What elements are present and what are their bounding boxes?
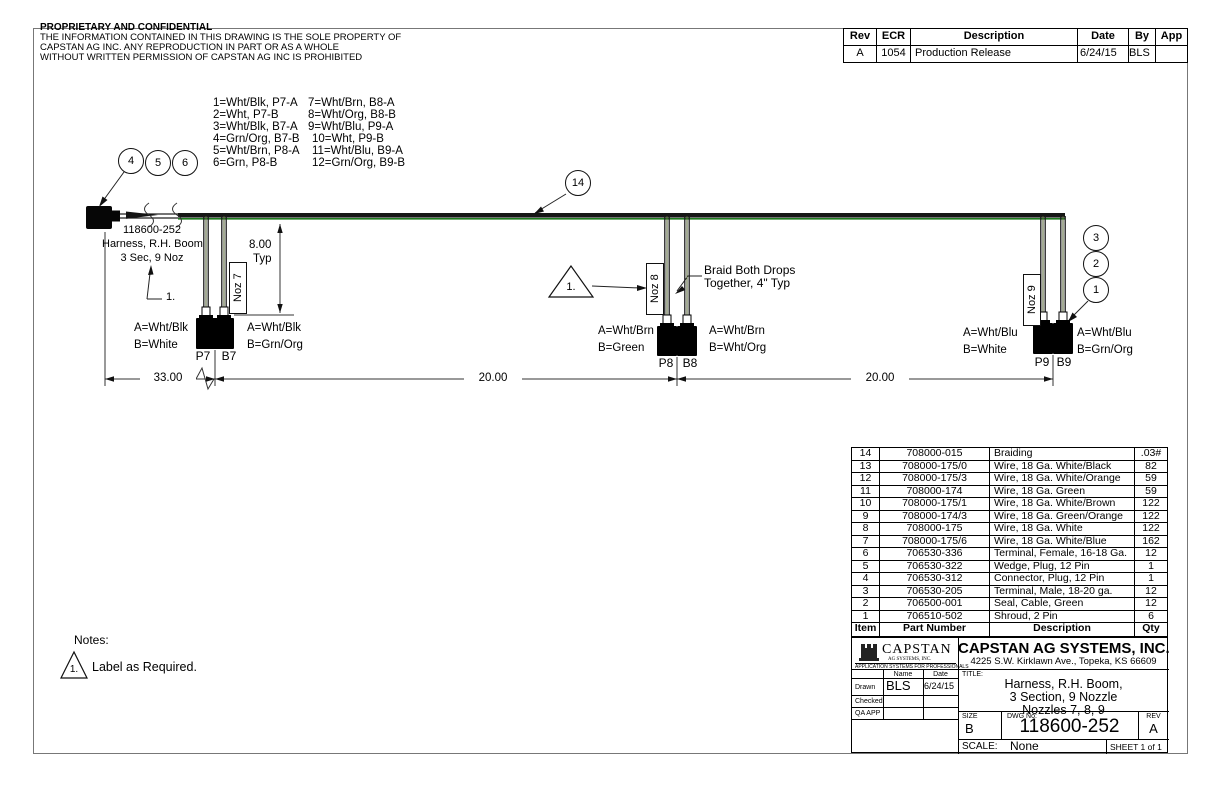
table-row: 6706530-336Terminal, Female, 16-18 Ga.12 xyxy=(852,548,1167,561)
wire-label: A=Wht/Blk xyxy=(247,322,301,335)
dimension-arrowheads xyxy=(105,224,1053,382)
title-block: CAPSTAN AG SYSTEMS, INC. APPLICATION SYS… xyxy=(851,637,1168,753)
table-row: 1706510-502Shroud, 2 Pin6 xyxy=(852,611,1167,624)
table-row: 5706530-322Wedge, Plug, 12 Pin1 xyxy=(852,561,1167,574)
triangle-note-number: 1. xyxy=(560,281,582,293)
noz9-tag: Noz 9 xyxy=(1023,274,1041,326)
dimension-lines xyxy=(105,224,1053,379)
legend-item: 7=Wht/Brn, B8-A xyxy=(308,97,395,110)
legend-item: 5=Wht/Brn, P8-A xyxy=(213,145,300,158)
table-row: 4706530-312Connector, Plug, 12 Pin1 xyxy=(852,573,1167,586)
capstan-logo-icon xyxy=(858,642,880,662)
legend-item: 9=Wht/Blu, P9-A xyxy=(308,121,393,134)
rev-label: REV xyxy=(1138,713,1169,720)
legend-item: 1=Wht/Blk, P7-A xyxy=(213,97,298,110)
extension-lines xyxy=(105,232,1053,386)
table-row: 12708000-175/3Wire, 18 Ga. White/Orange5… xyxy=(852,473,1167,486)
revision-table-row: A 1054 Production Release 6/24/15 BLS xyxy=(844,46,1187,63)
dim-8-value: 8.00 xyxy=(249,239,271,252)
name-header: Name xyxy=(883,671,923,678)
checked-label: Checked xyxy=(855,698,883,705)
logo-name: CAPSTAN xyxy=(882,643,952,658)
drawn-name: BLS xyxy=(886,679,911,693)
company-name: CAPSTAN AG SYSTEMS, INC. xyxy=(958,641,1169,657)
connector-label-b8: B8 xyxy=(679,357,701,370)
revision-table: Rev ECR Description Date By App A 1054 P… xyxy=(843,28,1188,63)
size-label: SIZE xyxy=(962,713,978,720)
balloon-callout-5: 5 xyxy=(145,150,171,176)
parts-table-header: Item Part Number Description Qty xyxy=(852,623,1167,636)
wire-label: B=Green xyxy=(598,342,644,355)
scale-label: SCALE: xyxy=(962,742,998,753)
wire-label: A=Wht/Brn xyxy=(598,325,654,338)
wire-label: A=Wht/Blk xyxy=(134,322,188,335)
harness-config: 3 Sec, 9 Noz xyxy=(102,252,202,264)
table-row: 13708000-175/0Wire, 18 Ga. White/Black82 xyxy=(852,461,1167,474)
balloon-callout-6: 6 xyxy=(172,150,198,176)
legend-item: 6=Grn, P8-B xyxy=(213,157,277,170)
wire-label: B=Grn/Org xyxy=(1077,344,1133,357)
wire-label: A=Wht/Brn xyxy=(709,325,765,338)
table-row: 2706500-001Seal, Cable, Green12 xyxy=(852,598,1167,611)
note-1-text: Label as Required. xyxy=(92,661,197,675)
legend-item: 10=Wht, P9-B xyxy=(312,133,384,146)
connector-label-p8: P8 xyxy=(655,357,677,370)
legend-item: 12=Grn/Org, B9-B xyxy=(312,157,405,170)
harness-trunk xyxy=(112,203,1065,227)
legend-item: 2=Wht, P7-B xyxy=(213,109,279,122)
wire-label: B=Wht/Org xyxy=(709,342,766,355)
wire-label: A=Wht/Blu xyxy=(1077,327,1132,340)
legend-item: 3=Wht/Blk, B7-A xyxy=(213,121,298,134)
table-row: 14708000-015Braiding.03# xyxy=(852,448,1167,461)
table-row: 9708000-174/3Wire, 18 Ga. Green/Orange12… xyxy=(852,511,1167,524)
wire-label: B=White xyxy=(963,344,1007,357)
dwg-number: 118600-252 xyxy=(1001,717,1138,737)
table-row: 8708000-175Wire, 18 Ga. White122 xyxy=(852,523,1167,536)
balloon-callout-4: 4 xyxy=(118,148,144,174)
table-row: 10708000-175/1Wire, 18 Ga. White/Brown12… xyxy=(852,498,1167,511)
label-note-ref: 1. xyxy=(166,291,175,303)
drawn-date: 6/24/15 xyxy=(924,682,954,691)
noz8-tag: Noz 8 xyxy=(646,263,664,315)
connector-label-b9: B9 xyxy=(1053,356,1075,369)
company-address: 4225 S.W. Kirklawn Ave., Topeka, KS 6660… xyxy=(958,657,1169,667)
drawn-label: Drawn xyxy=(855,684,875,691)
parts-table-rows: 14708000-015Braiding.03#13708000-175/0Wi… xyxy=(852,448,1167,623)
wire-label: A=Wht/Blu xyxy=(963,327,1018,340)
noz7-tag: Noz 7 xyxy=(229,262,247,314)
harness-part-number: 118600-252 xyxy=(102,224,202,236)
notes-triangle-number: 1. xyxy=(63,664,85,675)
qa-app-label: QA APP xyxy=(855,710,880,717)
date-header: Date xyxy=(923,671,958,678)
balloon-callout-2: 2 xyxy=(1083,251,1109,277)
dim-33: 33.00 xyxy=(140,372,196,385)
logo-sub: AG SYSTEMS, INC. xyxy=(888,657,931,662)
table-row: 3706530-205Terminal, Male, 18-20 ga.12 xyxy=(852,586,1167,599)
balloon-callout-3: 3 xyxy=(1083,225,1109,251)
connector-label-b7: B7 xyxy=(219,350,239,363)
wire-label: B=White xyxy=(134,339,178,352)
size-value: B xyxy=(965,722,974,736)
revision-table-header: Rev ECR Description Date By App xyxy=(844,29,1187,46)
dim-20a: 20.00 xyxy=(464,372,522,385)
legend-item: 11=Wht/Blu, B9-A xyxy=(312,145,403,158)
dim-8-typ: Typ xyxy=(253,253,272,266)
wire-label: B=Grn/Org xyxy=(247,339,303,352)
proprietary-line: WITHOUT WRITTEN PERMISSION OF CAPSTAN AG… xyxy=(40,53,362,63)
dim-20b: 20.00 xyxy=(851,372,909,385)
table-row: 7708000-175/6Wire, 18 Ga. White/Blue162 xyxy=(852,536,1167,549)
braid-note-line2: Together, 4" Typ xyxy=(704,277,790,290)
connector-label-p9: P9 xyxy=(1031,356,1053,369)
sheet-label: SHEET 1 of 1 xyxy=(1110,743,1162,752)
scale-value: None xyxy=(1010,740,1039,753)
legend-item: 8=Wht/Org, B8-B xyxy=(308,109,396,122)
connector-label-p7: P7 xyxy=(193,350,213,363)
logo-tagline: APPLICATION SYSTEMS FOR PROFESSIONALS xyxy=(855,665,969,670)
table-row: 11708000-174Wire, 18 Ga. Green59 xyxy=(852,486,1167,499)
notes-title: Notes: xyxy=(74,634,109,647)
parts-table: 14708000-015Braiding.03#13708000-175/0Wi… xyxy=(851,447,1168,637)
balloon-callout-14: 14 xyxy=(565,170,591,196)
balloon-callout-1: 1 xyxy=(1083,277,1109,303)
legend-item: 4=Grn/Org, B7-B xyxy=(213,133,300,146)
harness-name: Harness, R.H. Boom xyxy=(102,238,202,250)
rev-value: A xyxy=(1138,722,1169,736)
